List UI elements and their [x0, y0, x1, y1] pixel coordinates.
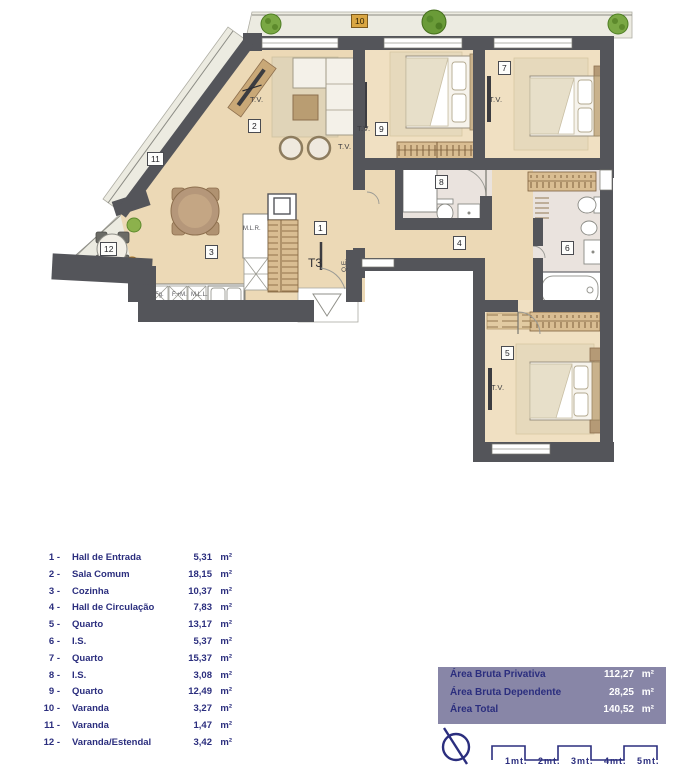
legend-row: 4 -Hall de Circulação7,83m² [36, 602, 232, 619]
fridge-label: Fg. [155, 292, 164, 299]
room-number-6: 6 [561, 241, 574, 255]
tv-label: T.V. [357, 125, 370, 133]
scale-label: 2mt. [538, 756, 561, 766]
room-legend: 1 -Hall de Entrada5,31m² 2 -Sala Comum18… [36, 552, 232, 754]
legend-row: 10 -Varanda3,27m² [36, 703, 232, 720]
washer-label: M.L.R. [243, 226, 261, 233]
unit-type-label: T3 [308, 256, 322, 270]
scale-label: 5mt. [637, 756, 660, 766]
pouf [280, 137, 302, 159]
room-number-9: 9 [375, 122, 388, 136]
room-number-11: 11 [147, 152, 164, 166]
dining-table [171, 187, 219, 235]
tv-label: T.V. [489, 96, 502, 104]
pouf [308, 137, 330, 159]
oven-label: F.+M. [172, 292, 187, 299]
legend-row: 1 -Hall de Entrada5,31m² [36, 552, 232, 569]
toilet [578, 197, 596, 213]
room-number-4: 4 [453, 236, 466, 250]
legend-row: 8 -I.S.3,08m² [36, 670, 232, 687]
wardrobe-room5 [487, 312, 600, 331]
scale-label: 3mt. [571, 756, 594, 766]
legend-row: 5 -Quarto13,17m² [36, 619, 232, 636]
legend-row: 12 -Varanda/Estendal3,42m² [36, 737, 232, 754]
summary-row: Área Bruta Privativa112,27m² [438, 669, 666, 687]
room-number-5: 5 [501, 346, 514, 360]
room-number-2: 2 [248, 119, 261, 133]
wardrobe-room9 [397, 142, 477, 159]
bed-room7 [530, 66, 608, 136]
tv-label: T.V. [250, 96, 263, 104]
shower [403, 166, 437, 212]
legend-row: 7 -Quarto15,37m² [36, 653, 232, 670]
shaft [268, 194, 296, 220]
room-number-10: 10 [351, 14, 368, 28]
summary-row: Área Bruta Dependente28,25m² [438, 687, 666, 705]
bidet [581, 221, 597, 235]
north-arrow [443, 728, 469, 764]
room-number-3: 3 [205, 245, 218, 259]
legend-row: 2 -Sala Comum18,15m² [36, 569, 232, 586]
plant [127, 218, 141, 232]
scale-label: 1mt. [505, 756, 528, 766]
tv-label: T.V. [338, 143, 351, 151]
pantry [268, 220, 298, 292]
area-summary-table: Área Bruta Privativa112,27m² Área Bruta … [438, 667, 666, 724]
wardrobe-vestibule [528, 172, 596, 191]
floor-plan-page: 1 2 3 4 5 6 7 8 9 10 11 12 T.V. T.V. T.V… [0, 0, 676, 771]
tv-label: T.V. [491, 384, 504, 392]
electrical-panel-label: Q.E. [341, 259, 348, 272]
legend-row: 11 -Varanda1,47m² [36, 720, 232, 737]
legend-row: 6 -I.S.5,37m² [36, 636, 232, 653]
scale-label: 4mt. [604, 756, 627, 766]
legend-row: 9 -Quarto12,49m² [36, 686, 232, 703]
room-number-8: 8 [435, 175, 448, 189]
bed-room9 [406, 54, 478, 130]
room-number-12: 12 [100, 242, 117, 256]
room-number-7: 7 [498, 61, 511, 75]
coffee-table [293, 95, 318, 120]
legend-row: 3 -Cozinha10,37m² [36, 586, 232, 603]
room-number-1: 1 [314, 221, 327, 235]
summary-row: Área Total140,52m² [438, 704, 666, 722]
dishwasher-label: M.L.L. [191, 292, 208, 299]
